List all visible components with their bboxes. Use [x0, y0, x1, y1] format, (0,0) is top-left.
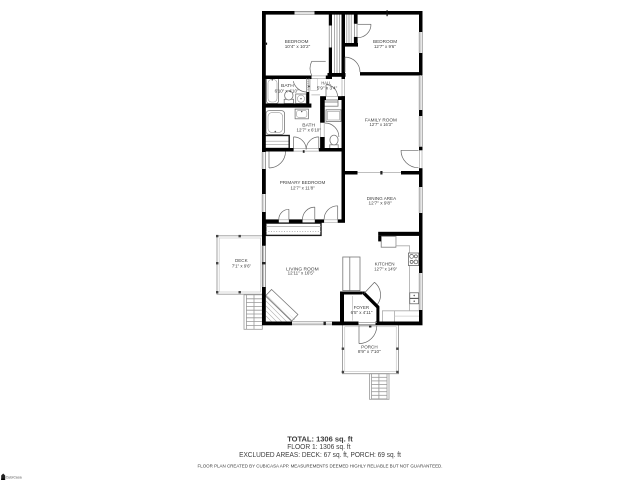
svg-text:5'9" x 3'4": 5'9" x 3'4" — [317, 86, 338, 91]
svg-text:BEDROOM: BEDROOM — [373, 39, 397, 44]
svg-text:12'11" x 16'5": 12'11" x 16'5" — [288, 271, 315, 276]
svg-text:PRIMARY BEDROOM: PRIMARY BEDROOM — [280, 180, 326, 185]
svg-text:PORCH: PORCH — [361, 344, 378, 349]
svg-text:12'7" x 11'8": 12'7" x 11'8" — [291, 185, 316, 190]
svg-text:12'7" x 9'6": 12'7" x 9'6" — [374, 44, 396, 49]
svg-text:6'5" x 4'11": 6'5" x 4'11" — [351, 310, 373, 315]
svg-text:12'7" x 6'10": 12'7" x 6'10" — [297, 128, 322, 133]
svg-text:8'9" x 7'10": 8'9" x 7'10" — [358, 349, 381, 354]
svg-text:12'7" x 16'3": 12'7" x 16'3" — [370, 122, 393, 127]
svg-text:7'1" x 9'6": 7'1" x 9'6" — [232, 263, 252, 268]
svg-text:HALL: HALL — [321, 81, 331, 86]
svg-text:FLOOR PLAN CREATED BY CUBICASA: FLOOR PLAN CREATED BY CUBICASA APP. MEAS… — [198, 464, 443, 470]
svg-text:KITCHEN: KITCHEN — [375, 262, 395, 267]
svg-text:EXCLUDED AREAS: DECK: 67 sq. f: EXCLUDED AREAS: DECK: 67 sq. ft, PORCH: … — [239, 452, 401, 459]
svg-text:BATH: BATH — [281, 83, 294, 88]
svg-text:BATH: BATH — [302, 123, 315, 128]
svg-text:CubiCasa: CubiCasa — [6, 475, 22, 479]
svg-text:DECK: DECK — [235, 258, 248, 263]
svg-text:TOTAL: 1306 sq. ft: TOTAL: 1306 sq. ft — [287, 434, 353, 443]
svg-text:12'7" x 14'9": 12'7" x 14'9" — [374, 267, 397, 272]
svg-text:FOYER: FOYER — [354, 305, 370, 310]
svg-text:12'7" x 9'8": 12'7" x 9'8" — [369, 200, 393, 205]
svg-text:10'4" x 10'2": 10'4" x 10'2" — [285, 44, 311, 49]
svg-text:6'10" x 4'10": 6'10" x 4'10" — [275, 88, 299, 93]
svg-text:FLOOR 1: 1306 sq. ft: FLOOR 1: 1306 sq. ft — [287, 444, 350, 451]
